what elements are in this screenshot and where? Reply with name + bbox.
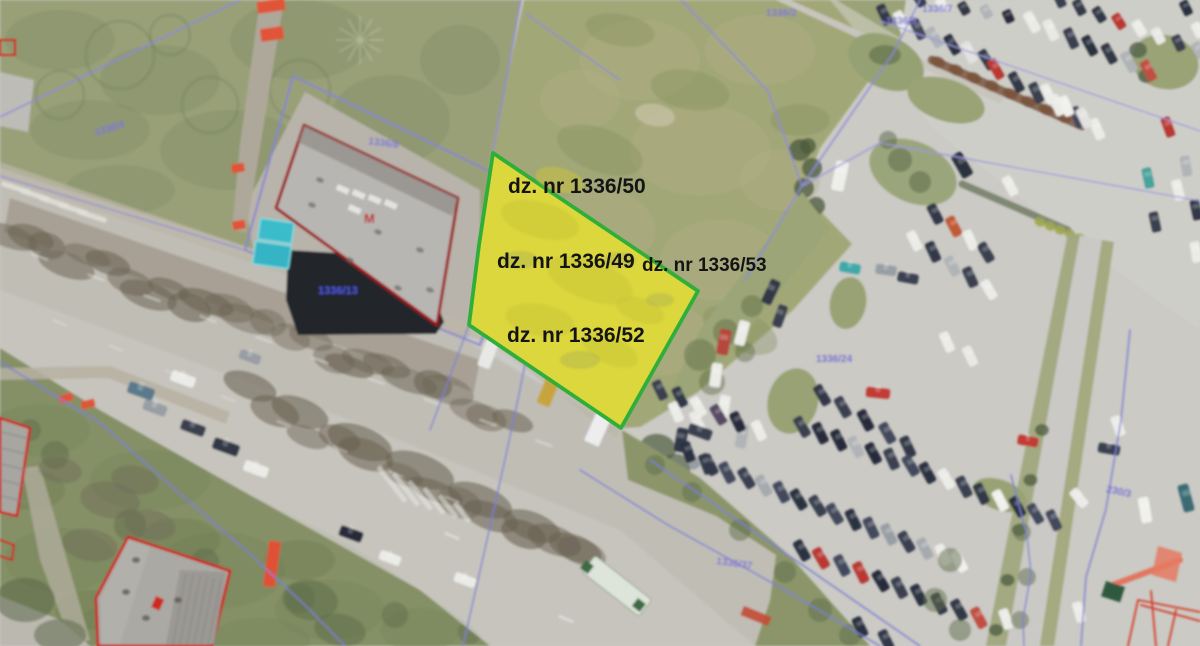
svg-text:dz. nr 1336/50: dz. nr 1336/50 [508,175,646,198]
svg-text:1336/13: 1336/13 [318,285,358,297]
svg-text:1336/2: 1336/2 [766,8,797,19]
svg-text:1336/3: 1336/3 [886,16,917,27]
svg-text:1336/24: 1336/24 [816,354,853,365]
svg-text:dz. nr 1336/52: dz. nr 1336/52 [507,324,645,347]
svg-text:1336/7: 1336/7 [922,4,953,15]
svg-text:M: M [364,211,375,226]
svg-text:dz. nr 1336/53: dz. nr 1336/53 [642,255,767,276]
svg-text:dz. nr 1336/49: dz. nr 1336/49 [497,250,635,273]
